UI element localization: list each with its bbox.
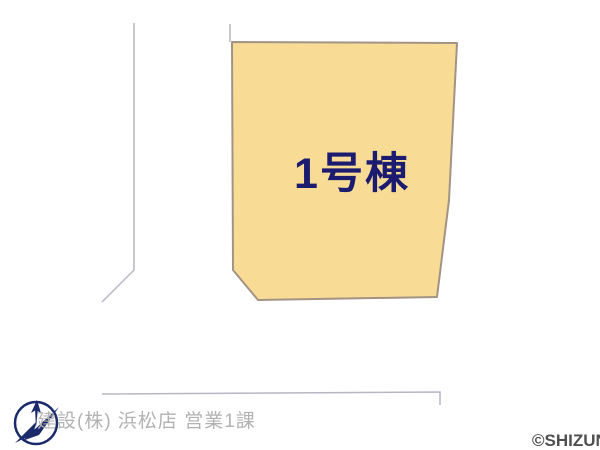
road-boundary-line-left <box>102 23 134 302</box>
site-plan: 1号棟 建設(株) 浜松店 営業1課 ©SHIZUNAV <box>0 0 600 450</box>
shizunav-watermark: ©SHIZUNAV <box>532 431 600 450</box>
company-caption: 建設(株) 浜松店 営業1課 <box>37 411 256 433</box>
site-plan-drawing: 1号棟 <box>0 0 600 450</box>
parcel-1-label: 1号棟 <box>294 150 410 198</box>
road-boundary-line-bottom <box>102 392 440 405</box>
